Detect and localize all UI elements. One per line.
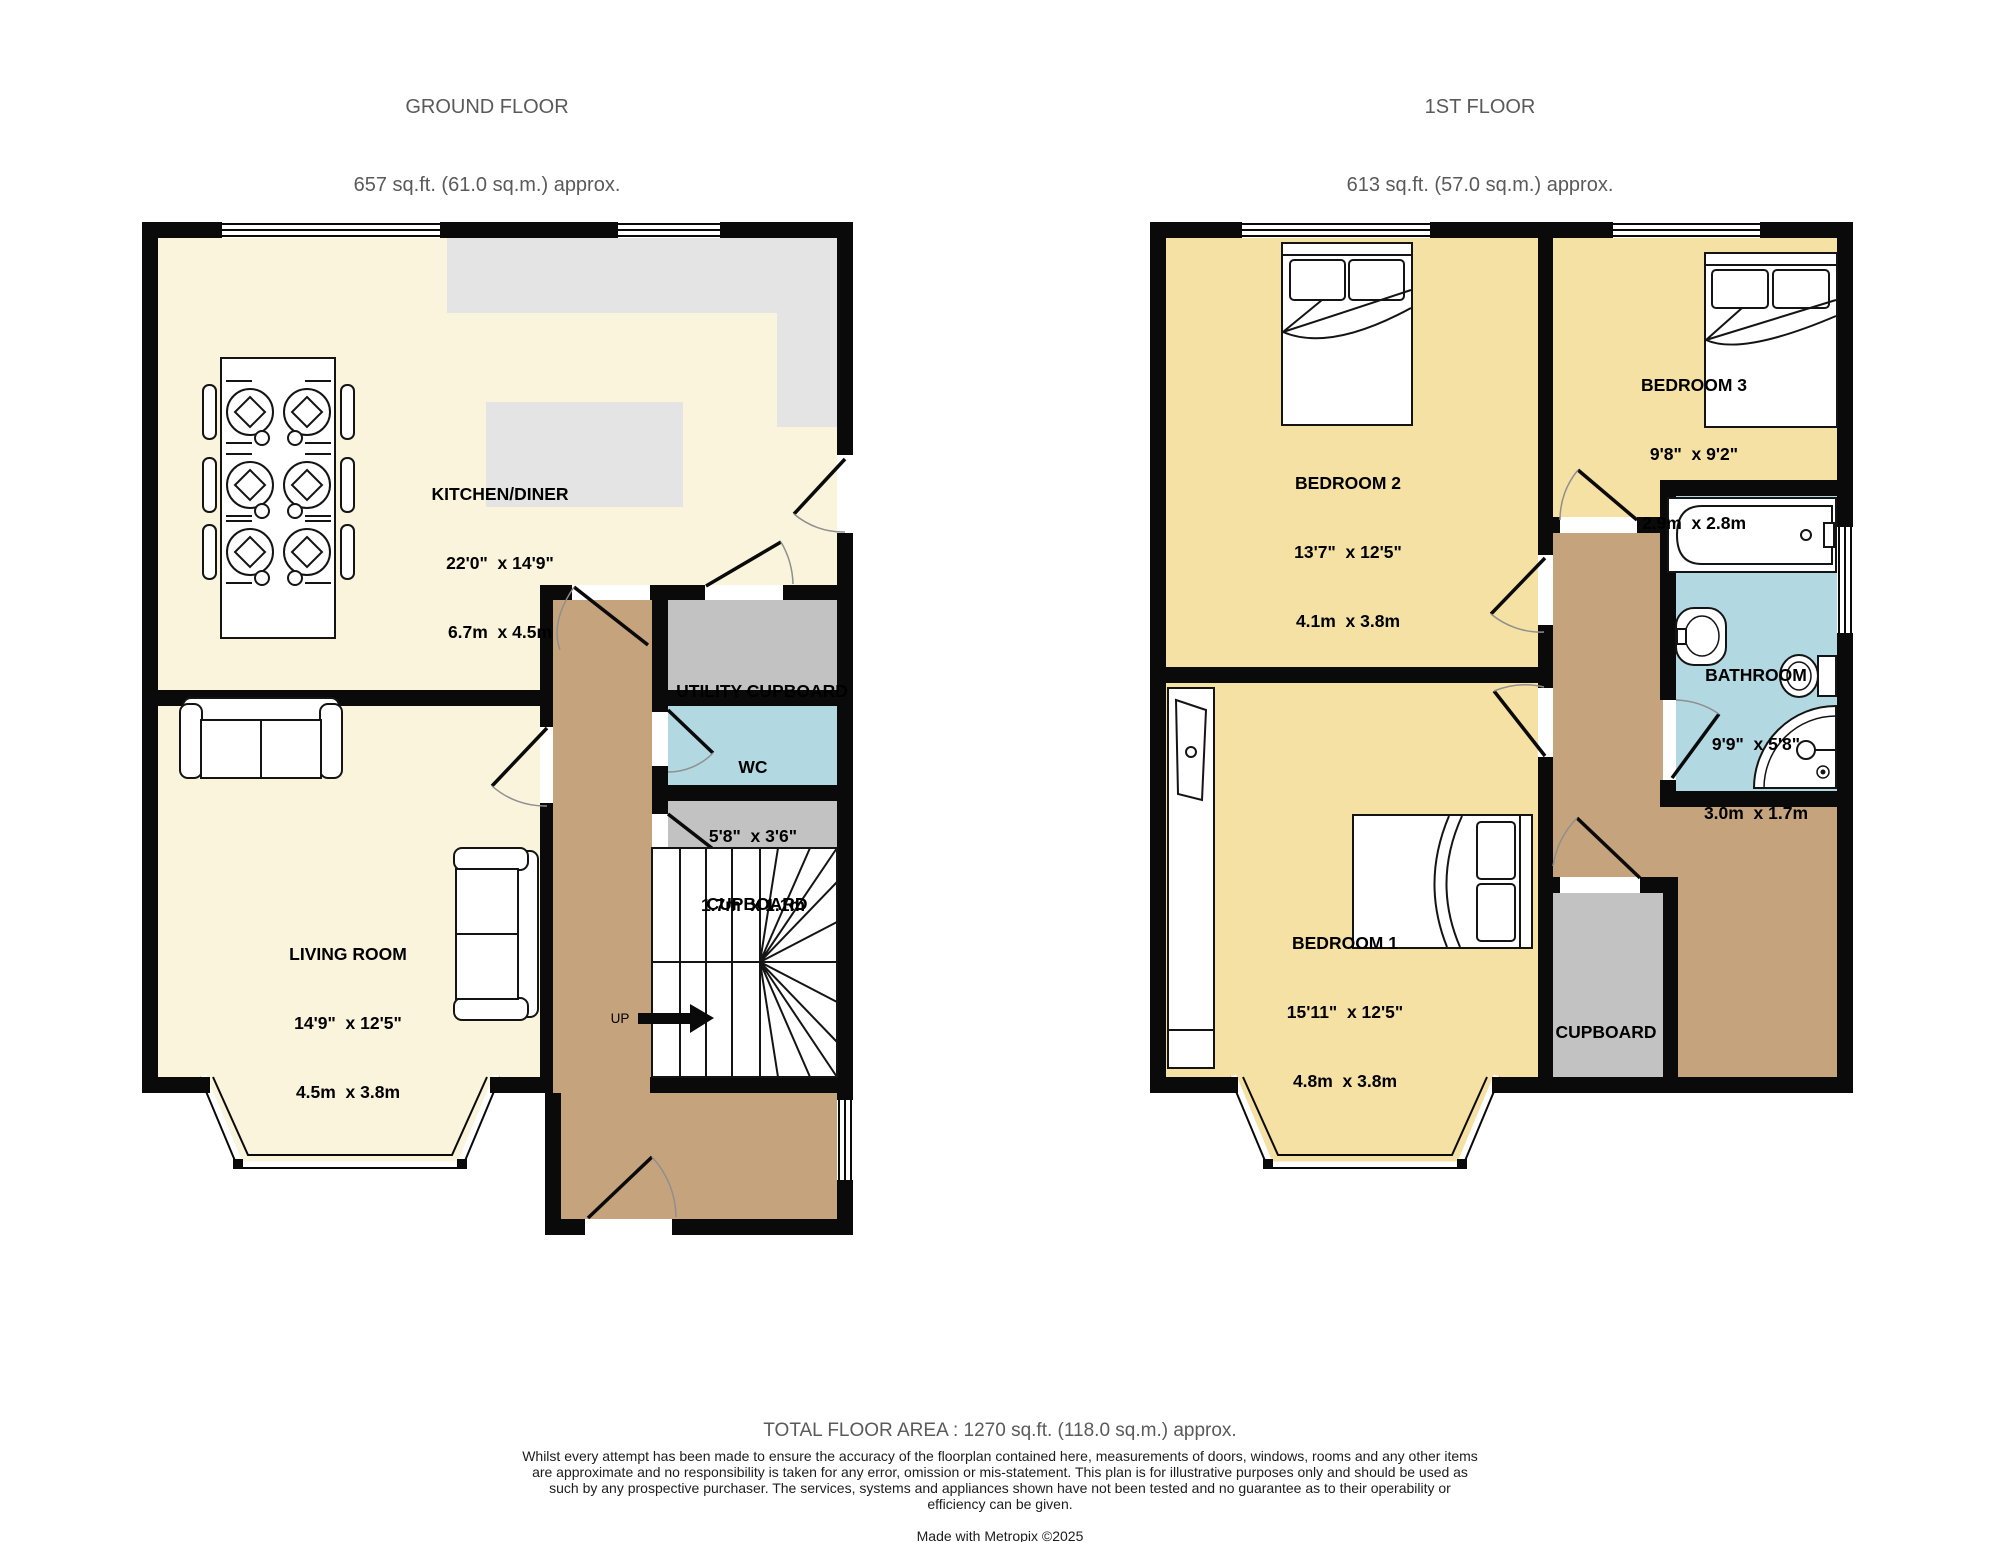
bedroom-3-label: BEDROOM 3 9'8" x 9'2" 2.9m x 2.8m [1641, 328, 1747, 558]
ground-floor-header: GROUND FLOOR 657 sq.ft. (61.0 sq.m.) app… [354, 42, 621, 224]
bathroom-label: BATHROOM 9'9" x 5'8" 3.0m x 1.7m [1704, 618, 1808, 848]
porch-floor [545, 1093, 853, 1219]
first-floor-header: 1ST FLOOR 613 sq.ft. (57.0 sq.m.) approx… [1347, 42, 1614, 224]
bathroom-metric: 3.0m x 1.7m [1704, 802, 1808, 825]
bedroom-2-imperial: 13'7" x 12'5" [1294, 541, 1402, 564]
living-room-metric: 4.5m x 3.8m [289, 1081, 407, 1104]
first-floor-cupboard-name: CUPBOARD [1555, 1021, 1656, 1044]
floorplan-drawing [0, 0, 2000, 1542]
kitchen-diner-metric: 6.7m x 4.5m [431, 621, 568, 644]
bedroom-3-metric: 2.9m x 2.8m [1641, 512, 1747, 535]
kitchen-diner-name: KITCHEN/DINER [431, 483, 568, 506]
first-floor-cupboard-label: CUPBOARD [1555, 975, 1656, 1067]
bedroom-1-label: BEDROOM 1 15'11" x 12'5" 4.8m x 3.8m [1287, 886, 1403, 1116]
living-room-label: LIVING ROOM 14'9" x 12'5" 4.5m x 3.8m [289, 897, 407, 1127]
hallway-floor [553, 600, 652, 1093]
bedroom-3-imperial: 9'8" x 9'2" [1641, 443, 1747, 466]
bedroom-1-imperial: 15'11" x 12'5" [1287, 1001, 1403, 1024]
sofa-side [454, 848, 538, 1020]
total-floor-area: TOTAL FLOOR AREA : 1270 sq.ft. (118.0 sq… [763, 1420, 1236, 1442]
utility-cupboard-label: UTILITY CUPBOARD [676, 634, 848, 726]
first-floor-title: 1ST FLOOR [1347, 94, 1614, 120]
bedroom-2-label: BEDROOM 2 13'7" x 12'5" 4.1m x 3.8m [1294, 426, 1402, 656]
living-room-imperial: 14'9" x 12'5" [289, 1012, 407, 1035]
ground-floor-area: 657 sq.ft. (61.0 sq.m.) approx. [354, 172, 621, 198]
floorplan-page: GROUND FLOOR 657 sq.ft. (61.0 sq.m.) app… [0, 0, 2000, 1542]
bedroom-1-name: BEDROOM 1 [1287, 932, 1403, 955]
wc-imperial: 5'8" x 3'6" [701, 825, 805, 848]
kitchen-diner-label: KITCHEN/DINER 22'0" x 14'9" 6.7m x 4.5m [431, 437, 568, 667]
bedroom-2-bed [1282, 243, 1412, 425]
bedroom-1-metric: 4.8m x 3.8m [1287, 1070, 1403, 1093]
kitchen-diner-imperial: 22'0" x 14'9" [431, 552, 568, 575]
living-room-name: LIVING ROOM [289, 943, 407, 966]
cupboard-name: CUPBOARD [706, 893, 807, 916]
kitchen-counter-top [447, 238, 837, 313]
stairs-up-label: UP [611, 1011, 630, 1026]
bedroom-2-metric: 4.1m x 3.8m [1294, 610, 1402, 633]
ground-floor-title: GROUND FLOOR [354, 94, 621, 120]
kitchen-counter-right [777, 313, 837, 427]
bedroom-1-wardrobe [1168, 688, 1214, 1068]
cupboard-label: CUPBOARD [706, 847, 807, 939]
metropix-credit: Made with Metropix ©2025 [917, 1528, 1084, 1542]
bedroom-3-name: BEDROOM 3 [1641, 374, 1747, 397]
disclaimer-text: Whilst every attempt has been made to en… [520, 1448, 1480, 1512]
utility-cupboard-name: UTILITY CUPBOARD [676, 680, 848, 703]
wc-name: WC [701, 756, 805, 779]
sofa-top [180, 698, 342, 778]
first-floor-area: 613 sq.ft. (57.0 sq.m.) approx. [1347, 172, 1614, 198]
landing-floor [1553, 533, 1663, 877]
bathroom-imperial: 9'9" x 5'8" [1704, 733, 1808, 756]
bedroom-2-name: BEDROOM 2 [1294, 472, 1402, 495]
bathroom-name: BATHROOM [1704, 664, 1808, 687]
